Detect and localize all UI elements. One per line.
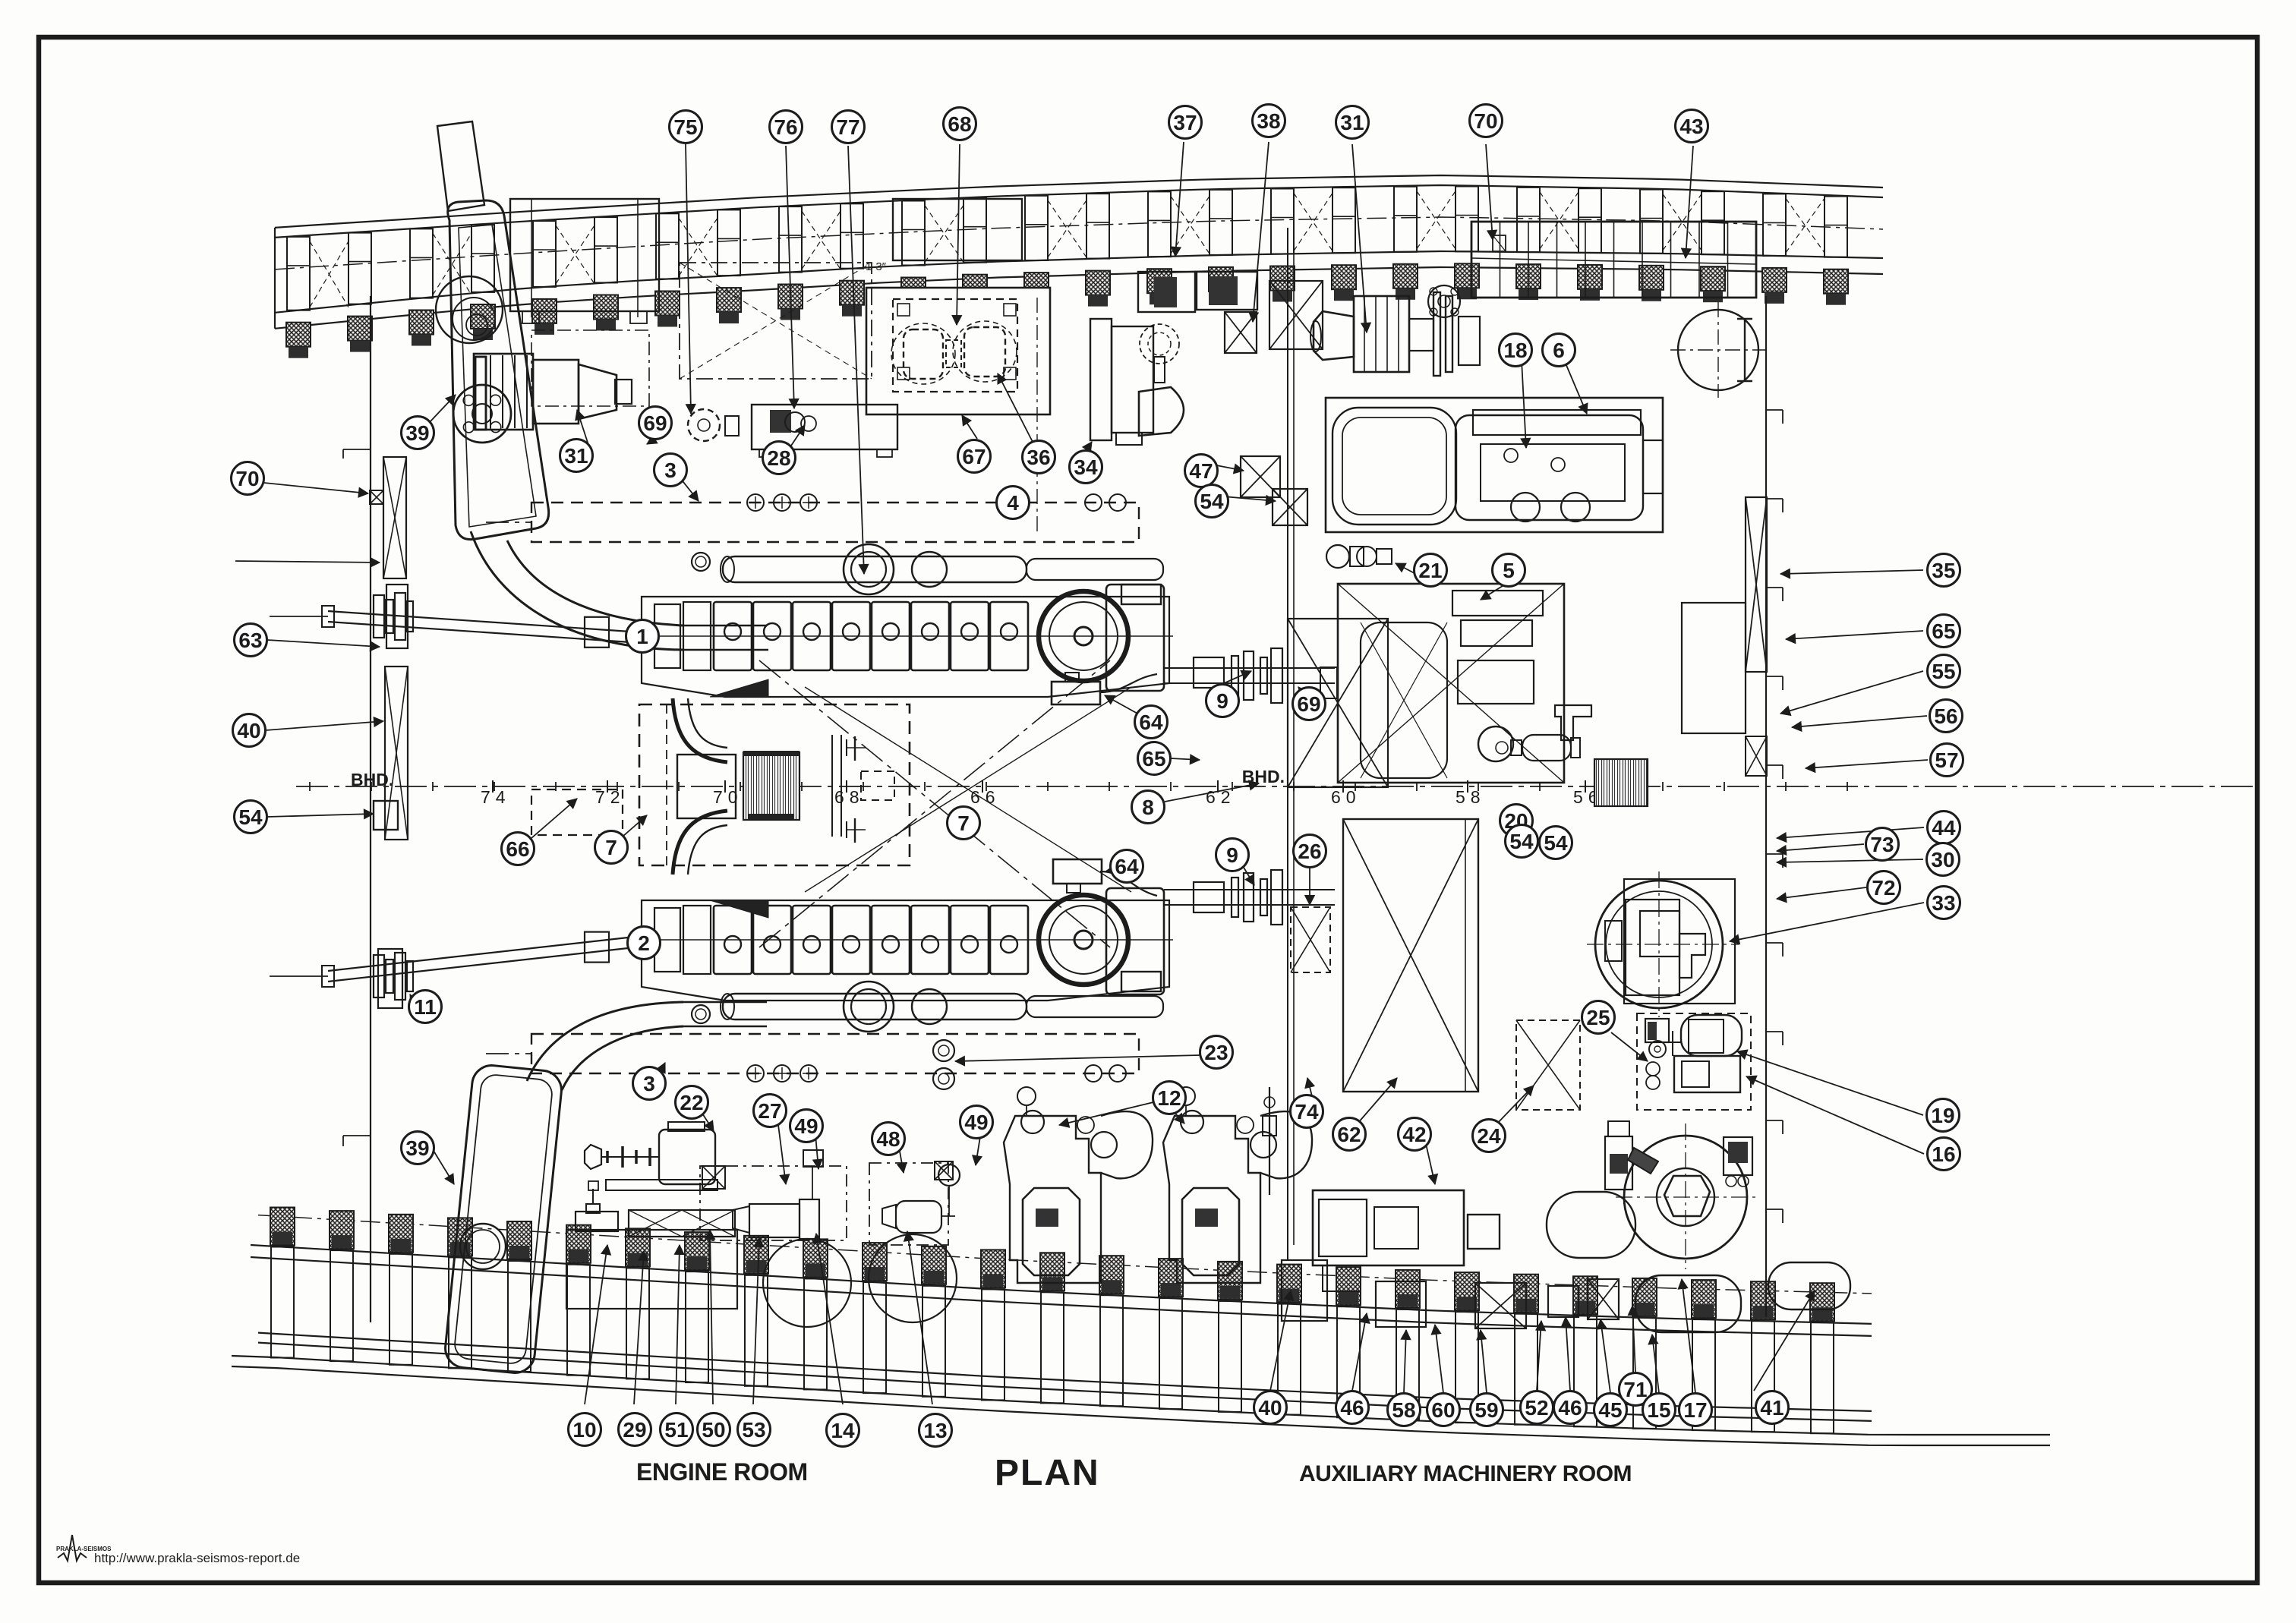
svg-text:10: 10 [572, 1418, 596, 1442]
svg-text:31: 31 [564, 444, 588, 468]
svg-text:53: 53 [742, 1418, 765, 1442]
svg-text:64: 64 [1115, 855, 1139, 878]
svg-text:60: 60 [1331, 787, 1361, 807]
svg-text:13: 13 [923, 1419, 947, 1442]
svg-text:26: 26 [1298, 840, 1321, 863]
svg-text:2: 2 [638, 931, 650, 955]
svg-text:60: 60 [1431, 1398, 1455, 1422]
svg-text:18: 18 [1503, 339, 1527, 362]
svg-text:28: 28 [767, 446, 790, 470]
svg-text:36: 36 [1027, 446, 1050, 469]
svg-text:27: 27 [758, 1099, 781, 1123]
svg-text:33: 33 [1932, 891, 1955, 915]
svg-text:42: 42 [1402, 1123, 1426, 1146]
svg-text:24: 24 [1477, 1124, 1501, 1148]
svg-text:40: 40 [237, 719, 260, 742]
svg-text:54: 54 [1509, 830, 1534, 853]
svg-text:58: 58 [1455, 787, 1486, 807]
svg-text:68: 68 [834, 787, 865, 807]
svg-text:68: 68 [948, 112, 971, 136]
svg-text:25: 25 [1586, 1006, 1610, 1029]
svg-text:66: 66 [970, 787, 1001, 807]
svg-text:11: 11 [414, 995, 437, 1019]
svg-text:77: 77 [836, 115, 859, 139]
svg-text:6: 6 [1553, 339, 1565, 362]
svg-text:35: 35 [1932, 559, 1955, 582]
svg-text:23: 23 [1204, 1041, 1228, 1064]
svg-text:3: 3 [643, 1072, 655, 1095]
svg-text:74: 74 [1295, 1100, 1319, 1123]
svg-text:49: 49 [794, 1114, 818, 1138]
svg-text:58: 58 [1392, 1398, 1415, 1422]
svg-text:BHD.: BHD. [1242, 767, 1285, 786]
svg-text:44: 44 [1932, 816, 1956, 840]
svg-text:8: 8 [1142, 796, 1154, 819]
svg-text:15: 15 [1647, 1398, 1670, 1422]
svg-text:1: 1 [636, 625, 648, 648]
svg-text:51: 51 [664, 1418, 688, 1442]
svg-text:12: 12 [1157, 1086, 1181, 1110]
svg-text:31: 31 [1340, 111, 1364, 134]
svg-text:41: 41 [1760, 1396, 1783, 1420]
svg-text:54: 54 [238, 805, 263, 829]
svg-text:54: 54 [1200, 490, 1224, 513]
svg-text:19: 19 [1931, 1104, 1954, 1127]
svg-text:3: 3 [664, 459, 676, 482]
svg-text:38: 38 [1257, 109, 1280, 133]
svg-text:7: 7 [605, 836, 617, 859]
svg-text:7: 7 [957, 811, 970, 835]
svg-text:46: 46 [1558, 1396, 1582, 1420]
svg-text:71: 71 [1623, 1378, 1647, 1401]
svg-text:62: 62 [1337, 1123, 1361, 1146]
svg-text:67: 67 [962, 445, 986, 468]
svg-text:72: 72 [1872, 876, 1895, 900]
svg-text:63: 63 [238, 629, 262, 652]
svg-text:39: 39 [405, 421, 429, 445]
svg-text:21: 21 [1418, 559, 1442, 582]
svg-text:34: 34 [1074, 455, 1098, 479]
svg-text:69: 69 [1297, 692, 1320, 716]
svg-text:14: 14 [831, 1419, 855, 1442]
svg-text:29: 29 [623, 1418, 646, 1442]
svg-text:http://www.prakla-seismos-repo: http://www.prakla-seismos-report.de [94, 1551, 300, 1565]
svg-text:48: 48 [876, 1127, 900, 1151]
svg-text:55: 55 [1932, 660, 1955, 683]
svg-text:22: 22 [680, 1091, 703, 1114]
svg-text:49: 49 [964, 1111, 988, 1134]
svg-text:ENGINE ROOM: ENGINE ROOM [636, 1458, 808, 1486]
svg-text:40: 40 [1258, 1396, 1282, 1420]
svg-text:54: 54 [1544, 831, 1568, 855]
svg-text:65: 65 [1142, 747, 1165, 771]
svg-text:43: 43 [1679, 115, 1703, 138]
svg-text:39: 39 [405, 1136, 429, 1160]
svg-text:69: 69 [643, 411, 667, 435]
svg-text:17: 17 [1683, 1398, 1707, 1422]
svg-text:PLAN: PLAN [995, 1453, 1100, 1493]
svg-text:56: 56 [1934, 704, 1957, 728]
svg-text:70: 70 [1474, 109, 1497, 133]
svg-text:47: 47 [1189, 459, 1213, 483]
svg-text:59: 59 [1474, 1398, 1498, 1422]
svg-text:74: 74 [481, 787, 511, 807]
svg-text:AUXILIARY MACHINERY ROOM: AUXILIARY MACHINERY ROOM [1299, 1461, 1632, 1486]
svg-text:70: 70 [235, 467, 259, 490]
svg-text:BHD.: BHD. [351, 770, 393, 789]
svg-text:30: 30 [1931, 848, 1954, 871]
svg-text:37: 37 [1173, 111, 1197, 134]
svg-text:76: 76 [774, 115, 797, 139]
svg-text:4: 4 [1007, 491, 1019, 515]
svg-text:45: 45 [1598, 1398, 1622, 1422]
svg-text:50: 50 [702, 1418, 725, 1442]
svg-text:64: 64 [1139, 711, 1163, 734]
svg-text:9: 9 [1216, 689, 1228, 713]
svg-text:52: 52 [1525, 1396, 1548, 1420]
svg-text:5: 5 [1503, 559, 1515, 582]
svg-text:65: 65 [1932, 619, 1955, 643]
svg-text:9: 9 [1226, 843, 1238, 867]
svg-text:57: 57 [1935, 748, 1958, 772]
svg-text:70: 70 [713, 787, 743, 807]
svg-text:66: 66 [506, 837, 529, 861]
svg-text:73: 73 [1870, 833, 1894, 856]
svg-text:75: 75 [673, 115, 697, 139]
svg-text:46: 46 [1340, 1396, 1364, 1420]
svg-text:16: 16 [1932, 1142, 1955, 1166]
